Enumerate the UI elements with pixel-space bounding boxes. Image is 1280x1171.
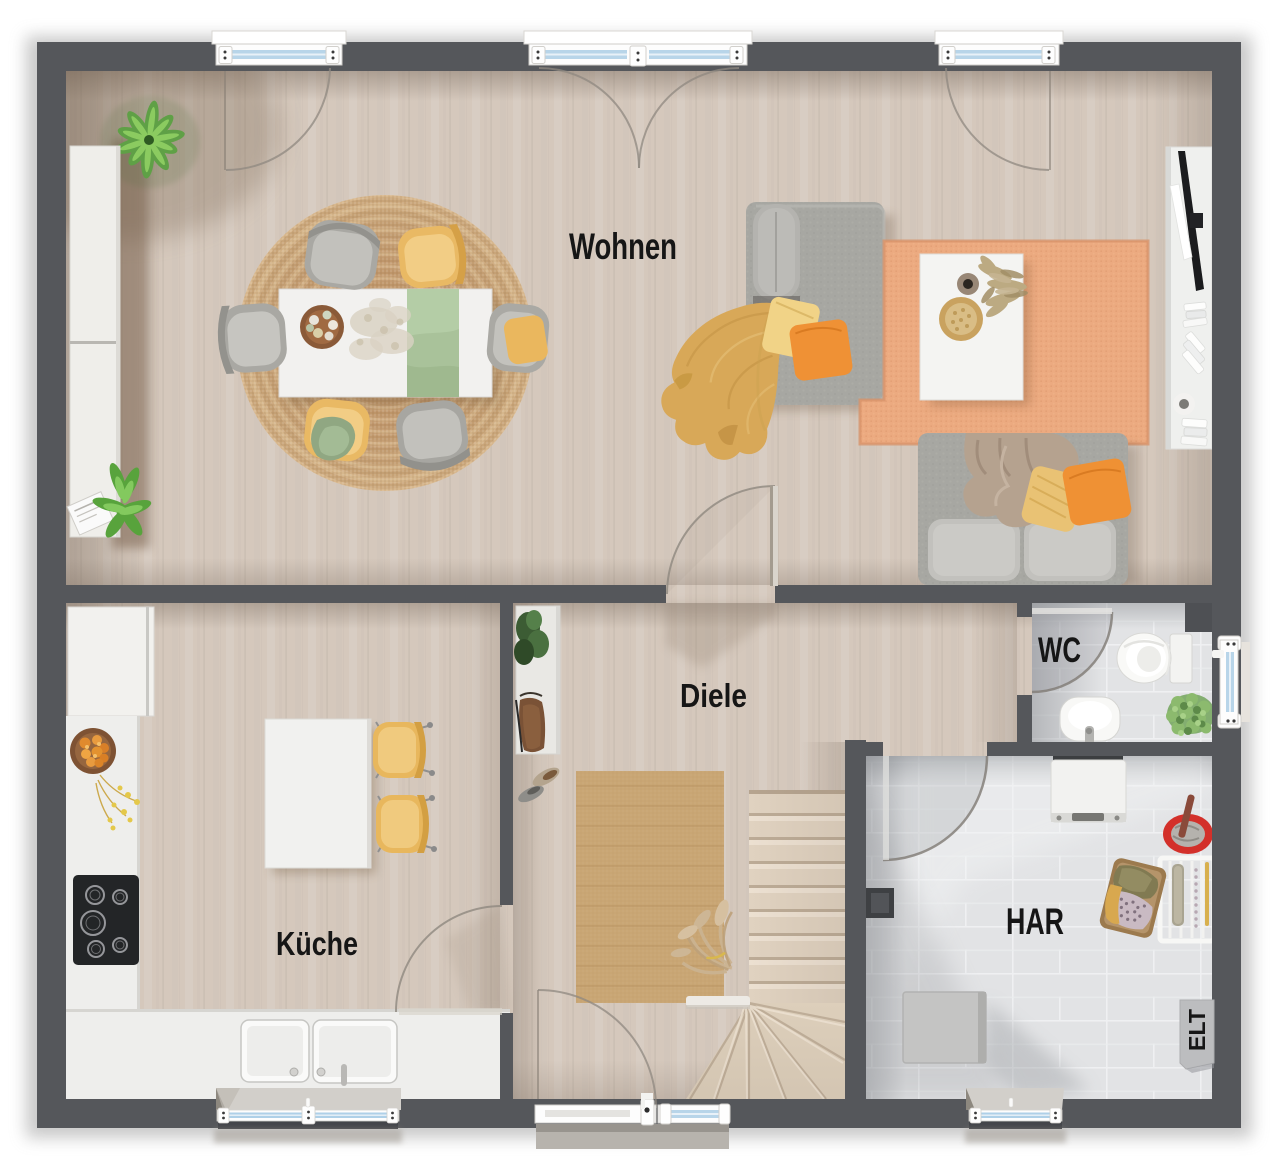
svg-text:ELT: ELT: [1184, 1009, 1210, 1051]
svg-text:Wohnen: Wohnen: [569, 226, 677, 267]
svg-text:HAR: HAR: [1006, 901, 1064, 942]
svg-text:Diele: Diele: [680, 677, 747, 714]
svg-text:WC: WC: [1038, 631, 1081, 670]
svg-text:Küche: Küche: [276, 925, 358, 962]
